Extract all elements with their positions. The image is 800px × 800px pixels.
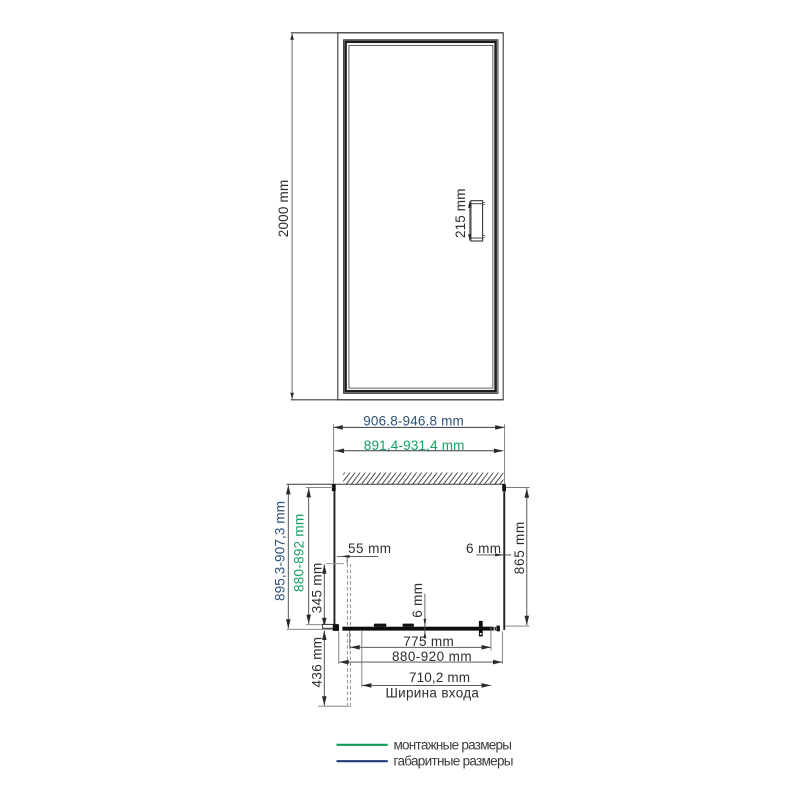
svg-text:865 mm: 865 mm [512,522,527,575]
svg-text:436 mm: 436 mm [310,637,325,688]
svg-text:215 mm: 215 mm [453,189,468,239]
svg-text:6 mm: 6 mm [410,583,425,618]
svg-text:895,3-907,3 mm: 895,3-907,3 mm [272,501,287,601]
svg-text:710,2 mm: 710,2 mm [409,670,470,685]
svg-text:880-920 mm: 880-920 mm [392,649,472,664]
svg-text:монтажные размеры: монтажные размеры [394,737,513,752]
svg-text:775 mm: 775 mm [403,634,453,649]
svg-text:2000 mm: 2000 mm [276,180,291,238]
svg-text:345 mm: 345 mm [310,563,325,614]
svg-text:габаритные размеры: габаритные размеры [394,754,514,769]
svg-text:880-892 mm: 880-892 mm [291,514,306,592]
svg-text:Ширина входа: Ширина входа [385,686,479,701]
svg-text:55 mm: 55 mm [348,541,391,556]
svg-text:906.8-946.8 mm: 906.8-946.8 mm [363,414,464,429]
